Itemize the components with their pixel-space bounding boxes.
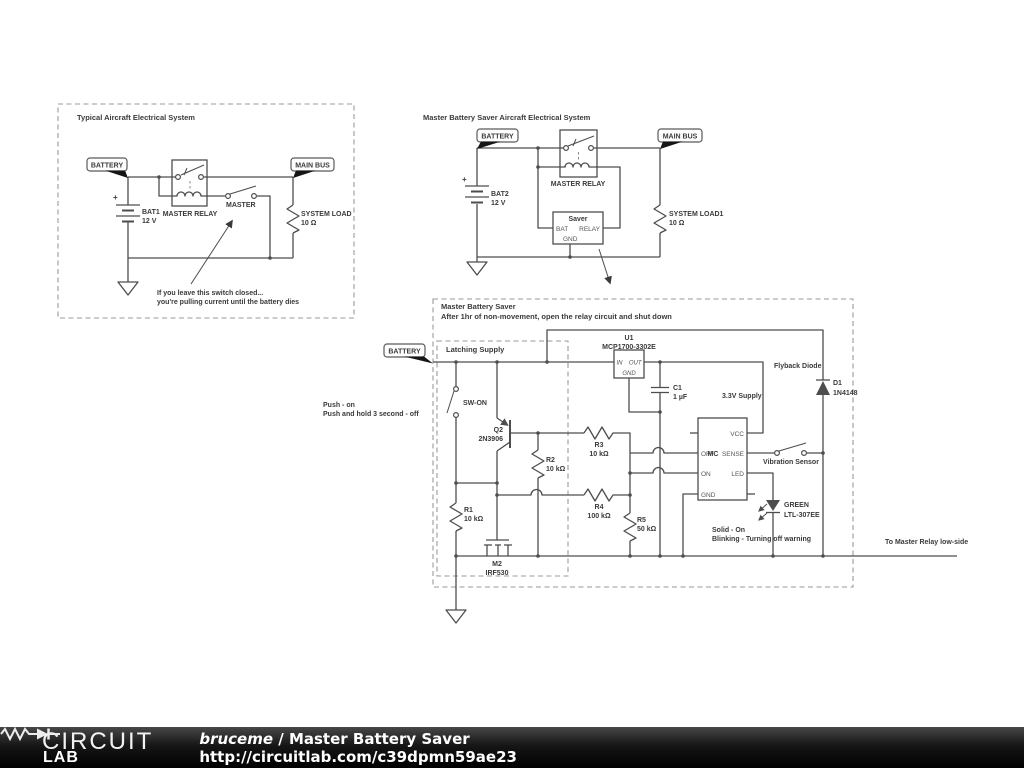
u1-pin-out: OUT (629, 361, 643, 367)
push-note: Push - on Push and hold 3 second - off (323, 402, 419, 418)
main-bus-flag-label: MAIN BUS (295, 163, 330, 170)
block3-subtitle: After 1hr of non-movement, open the rela… (441, 312, 672, 321)
main-bus-flag-2: MAIN BUS (658, 129, 702, 149)
r2-ref: R2 (546, 457, 555, 464)
block-saver-detail: Master Battery Saver After 1hr of non-mo… (323, 299, 968, 623)
q2-ref: Q2 (494, 427, 503, 434)
block3-wires (433, 330, 957, 610)
master-relay-2-label: MASTER RELAY (551, 181, 606, 188)
footer-meta: bruceme / Master Battery Saver http://ci… (199, 730, 517, 766)
circuitlab-footer-bar: CIRCUIT LAB bruceme / Master Battery Sav… (0, 727, 1024, 768)
saver-pin-relay: RELAY (579, 226, 600, 233)
annotation-line2: you're pulling current until the battery… (157, 299, 299, 306)
block1-title: Typical Aircraft Electrical System (77, 113, 195, 122)
battery-flag-2: BATTERY (477, 129, 518, 149)
push-note-line1: Push - on (323, 402, 355, 409)
bat1-ref: BAT1 (142, 209, 160, 216)
push-note-line2: Push and hold 3 second - off (323, 411, 419, 418)
footer-project-title: Master Battery Saver (289, 730, 470, 748)
sw-on-label: SW-ON (463, 400, 487, 407)
resistor-diode-icon (0, 727, 78, 741)
m2-value: IRF530 (486, 570, 509, 577)
mcu-pin-led: LED (731, 471, 744, 478)
system-load-ref: SYSTEM LOAD (301, 211, 352, 218)
master-relay-label: MASTER RELAY (163, 211, 218, 218)
q2-value: 2N3906 (478, 436, 503, 443)
battery-flag-label: BATTERY (91, 163, 124, 170)
circuitlab-schematic-page: Typical Aircraft Electrical System BATTE… (0, 0, 1024, 768)
block3-title: Master Battery Saver (441, 302, 516, 311)
bat2-plus-sign: + (462, 175, 467, 184)
bat1-value: 12 V (142, 218, 157, 225)
footer-project-line: bruceme / Master Battery Saver (199, 730, 517, 748)
sw-on-switch: SW-ON (447, 387, 487, 418)
r5-ref: R5 (637, 517, 646, 524)
relay-lowside-note: To Master Relay low-side (885, 539, 968, 546)
led-part-label: LTL-307EE (784, 512, 820, 519)
u1-pin-in: IN (617, 361, 624, 367)
battery-flag-3: BATTERY (384, 344, 433, 364)
c1-value: 1 µF (673, 394, 688, 401)
ground-symbol-3 (446, 610, 466, 623)
c1-ref: C1 (673, 385, 682, 392)
main-bus-flag: MAIN BUS (291, 158, 334, 178)
annotation-line1: If you leave this switch closed... (157, 290, 263, 297)
led-note: Solid - On Blinking - Turning off warnin… (712, 527, 811, 543)
q2-transistor: Q2 2N3906 (478, 418, 510, 451)
system-load-value: 10 Ω (301, 220, 317, 227)
block-typical-aircraft-system: Typical Aircraft Electrical System BATTE… (58, 104, 354, 318)
u1-ref: U1 (625, 335, 634, 342)
block3-dashed-border (433, 299, 853, 587)
u1-pin-gnd: GND (622, 371, 636, 377)
r3-value: 10 kΩ (589, 451, 609, 458)
ground-symbol-2 (467, 262, 487, 275)
latching-supply-label: Latching Supply (446, 345, 505, 354)
bat1-plus-sign: + (113, 193, 118, 202)
r3-resistor: R3 10 kΩ (589, 442, 609, 458)
system-load1-value: 10 Ω (669, 220, 685, 227)
ground-symbol-1 (118, 282, 138, 295)
battery-flag-3-label: BATTERY (388, 349, 421, 356)
mcu-pin-vcc: VCC (730, 431, 744, 438)
mcu-pin-gnd: GND (701, 492, 716, 499)
m2-ref: M2 (492, 561, 502, 568)
led-color-label: GREEN (784, 502, 809, 509)
saver-detail-arrow (599, 249, 610, 283)
r4-value: 100 kΩ (587, 513, 611, 520)
r5-value: 50 kΩ (637, 526, 657, 533)
bat2-value: 12 V (491, 200, 506, 207)
battery-flag: BATTERY (87, 158, 128, 178)
r1-ref: R1 (464, 507, 473, 514)
system-load1-ref: SYSTEM LOAD1 (669, 211, 724, 218)
circuitlab-logo-lab: LAB (43, 750, 79, 766)
master-relay-symbol: MASTER RELAY (163, 160, 218, 218)
r1-resistor: R1 10 kΩ (450, 503, 484, 531)
footer-url-link[interactable]: http://circuitlab.com/c39dpmn59ae23 (199, 748, 517, 766)
d1-ref: D1 (833, 380, 842, 387)
schematic-canvas: Typical Aircraft Electrical System BATTE… (0, 0, 1024, 768)
master-switch-symbol: MASTER (226, 186, 257, 209)
mcu-box: VCC SENSE LED OFF ON GND MC (698, 418, 747, 500)
main-bus-flag-2-label: MAIN BUS (663, 134, 698, 141)
bat2-battery-symbol: + BAT2 12 V (462, 175, 509, 207)
saver-box: Saver BAT RELAY GND (553, 212, 603, 244)
system-load-resistor: SYSTEM LOAD 10 Ω (287, 205, 352, 233)
master-switch-label: MASTER (226, 202, 256, 209)
d1-diode: D1 1N4148 (816, 380, 858, 397)
mcu-pin-sense: SENSE (722, 451, 745, 458)
footer-separator: / (273, 730, 289, 748)
circuitlab-logo: CIRCUIT LAB (42, 730, 153, 766)
annotation-arrow (191, 221, 232, 284)
r4-ref: R4 (595, 504, 604, 511)
vibration-sensor-switch: Vibration Sensor (763, 443, 819, 466)
footer-author: bruceme (199, 730, 273, 748)
mcu-label: MC (708, 451, 719, 458)
battery-flag-2-label: BATTERY (481, 134, 514, 141)
flyback-diode-label: Flyback Diode (774, 363, 822, 370)
u1-regulator: U1 MCP1700-3302E IN OUT GND (602, 335, 656, 378)
r2-value: 10 kΩ (546, 466, 566, 473)
saver-pin-gnd: GND (563, 236, 578, 243)
m2-mosfet: M2 IRF530 (484, 540, 512, 577)
r5-resistor: R5 50 kΩ (624, 513, 657, 541)
saver-title: Saver (568, 216, 587, 223)
r1-value: 10 kΩ (464, 516, 484, 523)
led-note-line2: Blinking - Turning off warning (712, 536, 811, 543)
r4-resistor: R4 100 kΩ (587, 504, 611, 520)
master-relay-2-symbol: MASTER RELAY (551, 130, 606, 188)
supply-3v3-label: 3.3V Supply (722, 393, 762, 400)
bat1-battery-symbol: + BAT1 12 V (113, 193, 160, 225)
block1-wires (128, 175, 293, 282)
block-saver-aircraft-system: Master Battery Saver Aircraft Electrical… (423, 113, 724, 283)
mcu-pin-on: ON (701, 471, 711, 478)
c1-capacitor: C1 1 µF (651, 385, 688, 401)
bat2-ref: BAT2 (491, 191, 509, 198)
system-load1-resistor: SYSTEM LOAD1 10 Ω (654, 205, 724, 233)
led-note-line1: Solid - On (712, 527, 745, 534)
r2-resistor: R2 10 kΩ (532, 450, 566, 478)
block1-annotation: If you leave this switch closed... you'r… (157, 221, 299, 306)
u1-value: MCP1700-3302E (602, 344, 656, 351)
d1-value: 1N4148 (833, 390, 858, 397)
saver-pin-bat: BAT (556, 226, 568, 233)
r3-ref: R3 (595, 442, 604, 449)
block2-title: Master Battery Saver Aircraft Electrical… (423, 113, 591, 122)
vibration-sensor-label: Vibration Sensor (763, 459, 819, 466)
led-green: GREEN LTL-307EE (759, 500, 820, 520)
